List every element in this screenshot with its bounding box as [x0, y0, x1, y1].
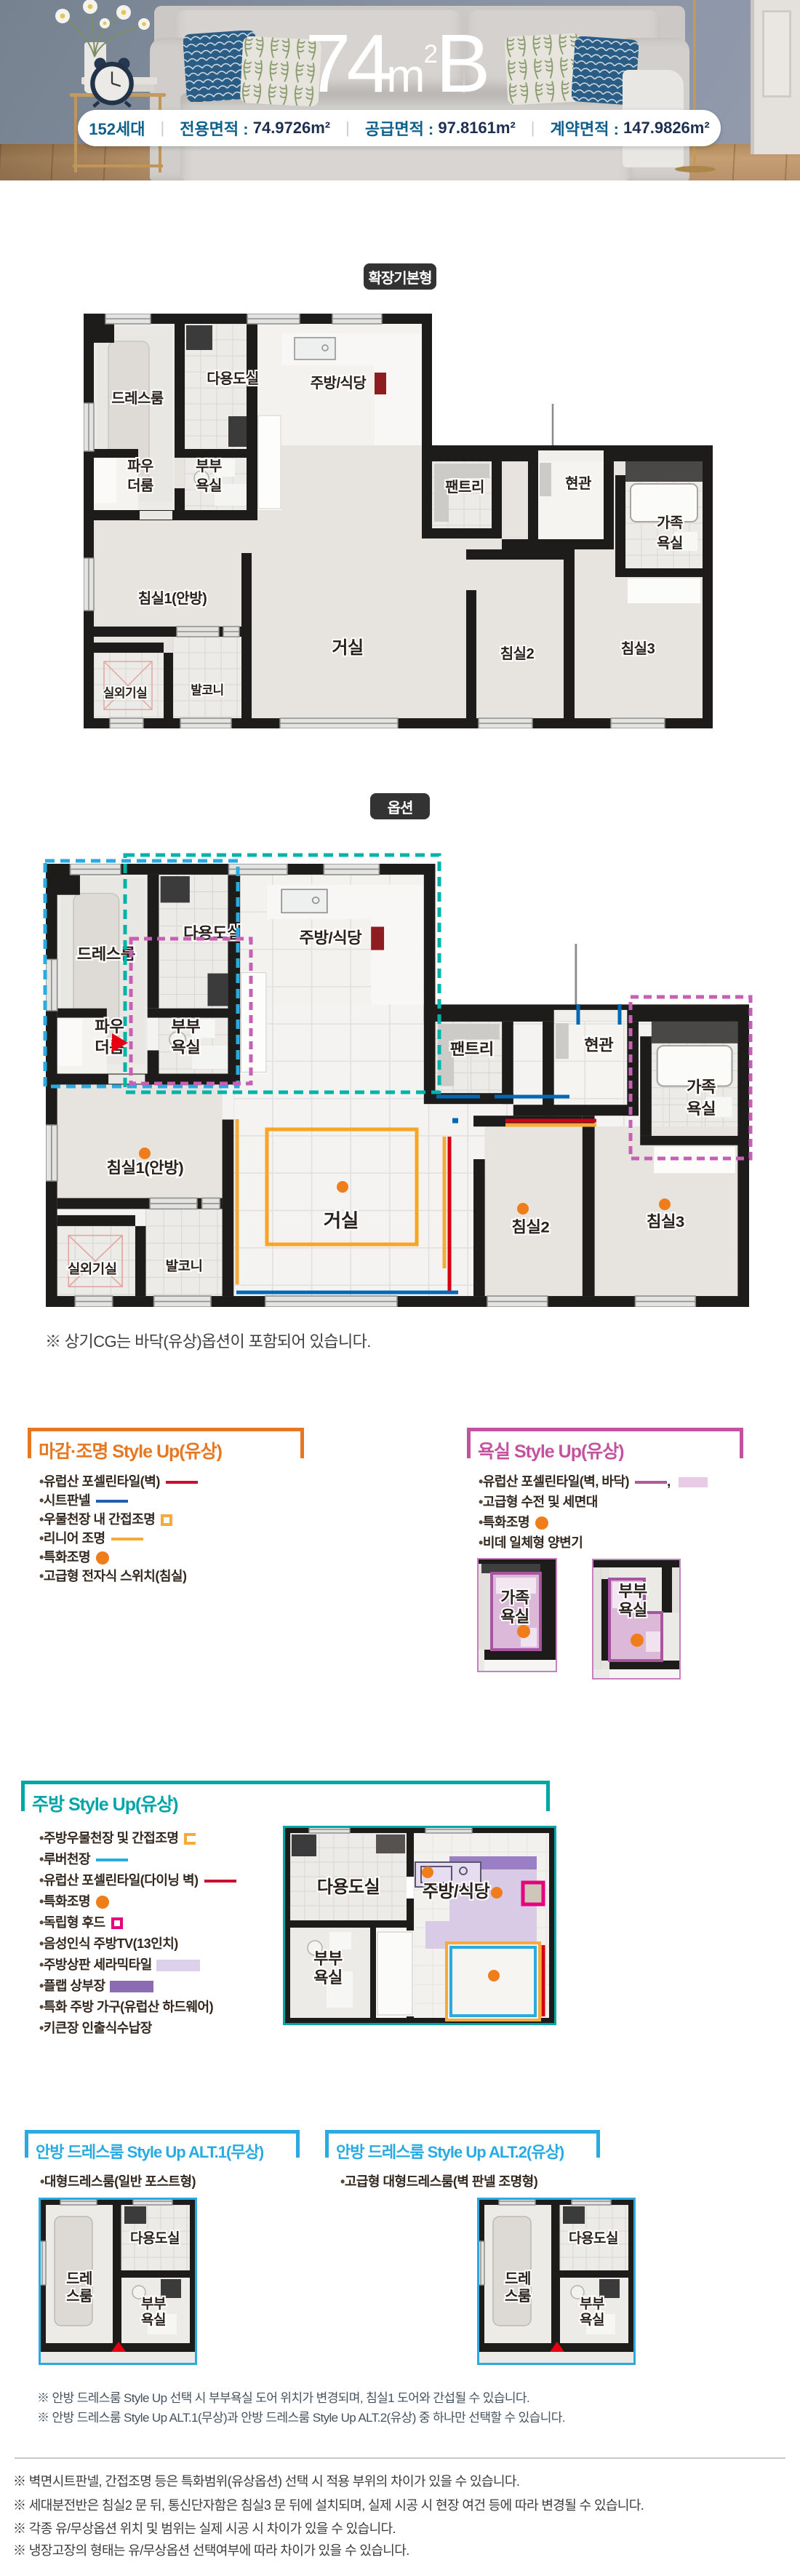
svg-text:팬트리: 팬트리	[445, 479, 484, 496]
svg-text:부부: 부부	[313, 1949, 343, 1968]
svg-text:욕실: 욕실	[500, 1607, 529, 1626]
svg-text:다용도실: 다용도실	[207, 370, 259, 387]
svg-text:파우: 파우	[127, 458, 153, 474]
svg-text:부부: 부부	[141, 2297, 166, 2312]
svg-text:주방/식당: 주방/식당	[423, 1882, 490, 1901]
svg-text:드레스룸: 드레스룸	[111, 390, 164, 407]
svg-text:다용도실: 다용도실	[569, 2230, 618, 2246]
svg-text:거실: 거실	[332, 638, 363, 658]
svg-text:가족: 가족	[500, 1589, 529, 1607]
svg-text:부부: 부부	[196, 458, 222, 474]
svg-text:다용도실: 다용도실	[130, 2230, 180, 2246]
svg-text:침실3: 침실3	[621, 640, 655, 657]
svg-text:드레: 드레	[505, 2270, 531, 2287]
svg-text:침실1(안방): 침실1(안방)	[138, 590, 207, 607]
svg-text:다용도실: 다용도실	[317, 1877, 380, 1897]
svg-text:주방/식당: 주방/식당	[311, 375, 367, 391]
svg-text:실외기실: 실외기실	[103, 686, 148, 700]
svg-text:부부: 부부	[618, 1582, 647, 1600]
svg-text:욕실: 욕실	[141, 2312, 166, 2328]
svg-text:욕실: 욕실	[313, 1968, 342, 1987]
svg-text:현관: 현관	[565, 475, 592, 492]
svg-text:가족: 가족	[657, 514, 683, 531]
svg-text:발코니: 발코니	[191, 683, 223, 697]
svg-text:욕실: 욕실	[657, 535, 683, 552]
svg-text:드레: 드레	[66, 2270, 92, 2287]
svg-text:스룸: 스룸	[505, 2288, 531, 2305]
svg-text:스룸: 스룸	[66, 2288, 92, 2305]
svg-text:더룸: 더룸	[127, 477, 153, 494]
svg-text:욕실: 욕실	[196, 477, 222, 494]
svg-text:침실2: 침실2	[500, 645, 535, 662]
svg-text:욕실: 욕실	[580, 2312, 604, 2328]
svg-text:욕실: 욕실	[618, 1601, 647, 1619]
svg-text:부부: 부부	[580, 2297, 604, 2312]
